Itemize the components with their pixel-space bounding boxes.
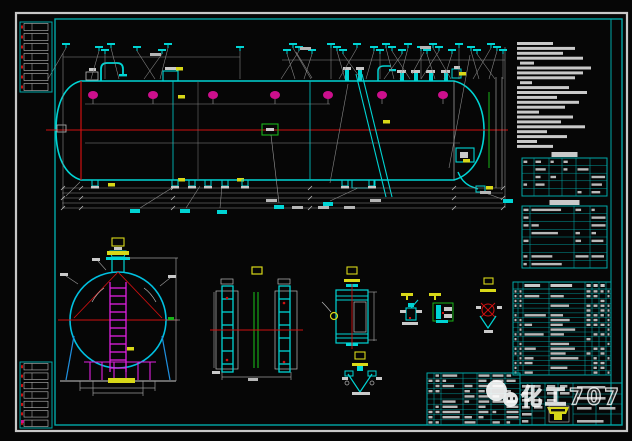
sign-table-cell-text bbox=[443, 385, 455, 387]
bom-table-cell-text bbox=[587, 338, 591, 340]
bottom-nozzle-cap bbox=[341, 186, 349, 189]
spec-table-cell-text bbox=[576, 209, 582, 211]
nozzle-flag bbox=[236, 46, 244, 48]
cad-viewport[interactable]: 化工707 bbox=[0, 0, 632, 441]
bottom-nozzle-cap bbox=[171, 186, 179, 189]
tb-cell-text bbox=[547, 385, 555, 388]
bom-table-cell-text bbox=[587, 305, 591, 307]
notes-table-cell-text bbox=[536, 183, 545, 185]
nozzle-flag bbox=[95, 46, 103, 48]
bottom-nozzle bbox=[205, 180, 211, 186]
bom-table-cell-text bbox=[601, 305, 605, 307]
bom-table-cell-text bbox=[515, 367, 517, 369]
detail-3-nozzle bbox=[429, 293, 453, 323]
green-tick bbox=[168, 317, 174, 320]
bom-table-cell-text bbox=[594, 348, 598, 350]
note-line bbox=[517, 116, 573, 119]
sign-table-cell-text bbox=[479, 380, 487, 382]
notes-table-cell-text bbox=[536, 168, 546, 170]
bom-table-cell-text bbox=[515, 348, 517, 350]
tb-cell-text bbox=[534, 385, 541, 388]
sign-table-cell-text bbox=[493, 374, 504, 376]
bom-table-cell-text bbox=[551, 324, 563, 326]
nozzle-cap-6 bbox=[441, 70, 450, 73]
cyan-dim-label bbox=[217, 210, 227, 214]
dim-text bbox=[420, 46, 431, 49]
bom-table-cell-text bbox=[520, 357, 522, 359]
nozzle-stub-4 bbox=[414, 73, 418, 81]
bom-table-cell-text bbox=[601, 300, 605, 302]
shell-flange bbox=[438, 91, 448, 99]
top-manhole bbox=[106, 247, 130, 272]
sign-table-cell-text bbox=[479, 411, 489, 413]
shell-flange bbox=[148, 91, 158, 99]
bom-table-cell-text bbox=[515, 362, 517, 364]
bom-table-cell-text bbox=[601, 352, 605, 354]
sign-table-cell-text bbox=[507, 390, 511, 392]
flag-leader bbox=[281, 51, 299, 79]
dim-text bbox=[292, 206, 303, 209]
spec-table-cell-text bbox=[532, 232, 558, 234]
nozzle-flag bbox=[289, 43, 297, 45]
nozzle-flag bbox=[487, 43, 495, 45]
strip-top-cell bbox=[24, 34, 48, 41]
bom-table-cell-text bbox=[515, 333, 517, 335]
yellow-tag bbox=[383, 120, 390, 124]
leader-6 bbox=[186, 186, 200, 208]
strip-bottom-cell bbox=[24, 401, 48, 407]
top-valve-cap bbox=[89, 68, 96, 71]
bom-table-cell-text bbox=[520, 305, 522, 307]
bom-table-cell-text bbox=[520, 362, 522, 364]
bom-table-cell-text bbox=[515, 338, 517, 340]
angle-arc-right bbox=[144, 288, 156, 302]
spec-table-cell-text bbox=[532, 224, 539, 226]
bom-table-cell-text bbox=[608, 328, 610, 330]
note-line bbox=[517, 67, 591, 70]
nozzle-flag bbox=[429, 43, 437, 45]
sign-table-cell-text bbox=[436, 406, 439, 408]
main-elevation-view bbox=[46, 47, 508, 208]
spec-table-cell-text bbox=[524, 216, 529, 218]
strip-top-mark bbox=[21, 66, 23, 69]
notes-table-cell-text bbox=[551, 176, 557, 178]
sign-table-cell-text bbox=[493, 421, 500, 423]
notes-table-cell-text bbox=[578, 191, 582, 193]
bom-table-cell-text bbox=[551, 305, 570, 307]
notes-table-cell-text bbox=[524, 183, 528, 185]
nozzle-flag bbox=[158, 49, 166, 51]
spec-table-cell-text bbox=[524, 263, 527, 265]
bom-table-cell-text bbox=[587, 319, 591, 321]
strip-top-cell bbox=[24, 44, 48, 51]
yellow-tag bbox=[178, 178, 185, 182]
bottom-nozzle bbox=[342, 180, 348, 186]
bom-table-cell-text bbox=[551, 328, 576, 330]
bom-table-cell-text bbox=[587, 295, 591, 297]
manhole-cap bbox=[165, 67, 176, 70]
dim-text bbox=[370, 199, 381, 202]
sign-table-cell-text bbox=[479, 416, 484, 418]
bom-table-cell-text bbox=[601, 333, 605, 335]
nozzle-flag bbox=[398, 49, 406, 51]
bom-table-cell-text bbox=[594, 371, 598, 373]
nozzle-flag bbox=[101, 49, 109, 51]
strip-bottom-mark bbox=[21, 384, 23, 387]
tb-cell-text bbox=[599, 407, 615, 410]
cyan-dim-label bbox=[323, 202, 333, 206]
detail-4-nozzle bbox=[476, 278, 502, 333]
note-line bbox=[517, 86, 569, 89]
nozzle-cap-5 bbox=[426, 70, 435, 73]
note-line bbox=[520, 62, 534, 65]
notes-table-cell-text bbox=[578, 168, 589, 170]
bottom-nozzle-cap bbox=[241, 186, 249, 189]
bom-table-cell-text bbox=[601, 367, 605, 369]
sign-table-cell-text bbox=[493, 400, 504, 402]
company-logo-band bbox=[551, 409, 565, 411]
bom-table-cell-text bbox=[551, 333, 564, 335]
bom-table-cell-text bbox=[608, 371, 610, 373]
strip-top-mark bbox=[21, 46, 23, 49]
bom-table-cell-text bbox=[594, 290, 598, 292]
internal-ladder-rail-2 bbox=[362, 74, 392, 197]
nozzle-cap-2 bbox=[356, 67, 364, 70]
bom-table-cell-text bbox=[608, 305, 610, 307]
bom-table-cell-text bbox=[525, 333, 544, 335]
flange-row bbox=[88, 91, 448, 104]
strip-top-cell bbox=[24, 84, 48, 91]
dim-text bbox=[300, 47, 311, 50]
bom-table-cell-text bbox=[551, 343, 570, 345]
flag-leader bbox=[473, 48, 491, 79]
level-gauge-glyph bbox=[266, 128, 274, 131]
edge-strips bbox=[20, 22, 52, 428]
bom-table-cell-text bbox=[608, 343, 610, 345]
sign-table-cell-text bbox=[507, 400, 517, 402]
notes-table-cell-text bbox=[592, 176, 606, 178]
nozzle-flag bbox=[493, 46, 501, 48]
leader-4 bbox=[296, 52, 312, 78]
sign-table-cell-text bbox=[429, 411, 433, 413]
tb-cell-text bbox=[577, 386, 605, 389]
nozzle-stub-1 bbox=[345, 70, 349, 81]
nozzle-flag bbox=[333, 46, 341, 48]
spec-table-cell-text bbox=[576, 232, 580, 234]
note-line bbox=[517, 71, 583, 74]
notes-table-cell-text bbox=[564, 168, 568, 170]
leader-1 bbox=[330, 84, 348, 183]
strip-top-mark bbox=[21, 86, 23, 89]
vent-gooseneck bbox=[101, 63, 123, 81]
bom-table-cell-text bbox=[587, 309, 591, 311]
notes-table-cell-text bbox=[524, 161, 528, 163]
sign-table-cell-text bbox=[429, 416, 433, 418]
nozzle-flag bbox=[455, 43, 463, 45]
bom-table-cell-text bbox=[551, 348, 575, 350]
sign-table-cell-text bbox=[436, 411, 440, 413]
nozzle-flag bbox=[382, 43, 390, 45]
saddle-plan-view bbox=[210, 267, 303, 381]
sign-table-cell-text bbox=[465, 395, 475, 397]
sign-table-cell-text bbox=[429, 380, 433, 382]
nozzle-flag bbox=[376, 49, 384, 51]
gooseneck-flange bbox=[119, 74, 127, 76]
sign-table-cell-text bbox=[507, 406, 519, 408]
internal-ladder bbox=[110, 282, 126, 372]
sign-table-cell-text bbox=[479, 374, 490, 376]
sign-table-cell-text bbox=[493, 411, 497, 413]
spec-table-cell-text bbox=[592, 209, 595, 211]
sign-table-cell-text bbox=[465, 421, 476, 423]
bom-table-cell-text bbox=[601, 362, 605, 364]
spec-table-cell-text bbox=[532, 263, 562, 265]
bom-table-cell-text bbox=[525, 362, 533, 364]
notes-table-cell-text bbox=[536, 161, 542, 163]
bom-table-cell-text bbox=[525, 348, 536, 350]
flag-leader bbox=[489, 51, 497, 79]
note-line bbox=[517, 111, 539, 114]
manhole-nozzle bbox=[163, 71, 178, 81]
bom-table-cell-text bbox=[520, 333, 522, 335]
strip-bottom-border bbox=[20, 362, 52, 428]
tb-cell-text bbox=[560, 392, 570, 395]
bom-table-cell-text bbox=[520, 328, 522, 330]
flag-leader bbox=[433, 48, 451, 79]
dim-text bbox=[318, 206, 329, 209]
strip-magenta-dot bbox=[21, 420, 24, 423]
leader-5 bbox=[140, 186, 175, 208]
bom-table-cell-text bbox=[515, 290, 517, 292]
note-line bbox=[517, 52, 563, 55]
sign-table-cell-text bbox=[436, 421, 439, 423]
nozzle-cap-4 bbox=[411, 70, 420, 73]
bom-table-cell-text bbox=[594, 333, 598, 335]
bom-table-cell-text bbox=[587, 314, 591, 316]
tb-cell-text bbox=[522, 392, 531, 395]
tb-cell-text bbox=[577, 397, 606, 400]
spec-table-cell-text bbox=[592, 255, 605, 257]
base-label-bar bbox=[108, 378, 135, 383]
bom-table-cell-text bbox=[608, 290, 610, 292]
bom-table-cell-text bbox=[601, 314, 604, 316]
sign-table-cell-text bbox=[465, 385, 473, 387]
drawing-sheet bbox=[0, 0, 632, 441]
inner-border bbox=[55, 19, 622, 425]
dim-text bbox=[344, 206, 355, 209]
yellow-tag bbox=[108, 183, 115, 187]
bom-table-cell-text bbox=[520, 324, 522, 326]
flag-leader bbox=[366, 51, 374, 79]
bom-table-cell-text bbox=[601, 348, 605, 350]
nozzle-flags bbox=[48, 43, 507, 79]
bom-table-cell-text bbox=[594, 367, 597, 369]
spec-table-cell-text bbox=[532, 255, 553, 257]
bom-table-cell-text bbox=[520, 343, 522, 345]
sign-table-cell-text bbox=[493, 385, 504, 387]
nozzle-flag bbox=[62, 43, 70, 45]
bom-table-cell-text bbox=[551, 319, 570, 321]
notes-table-cell-text bbox=[564, 161, 568, 163]
nozzle-flag bbox=[423, 49, 431, 51]
bom-table-cell-text bbox=[608, 309, 610, 311]
bom-table-cell-text bbox=[608, 314, 610, 316]
tb-cell-text bbox=[534, 406, 542, 409]
view-flag-box bbox=[112, 238, 124, 246]
sign-table-cell-text bbox=[443, 406, 458, 408]
dim-text bbox=[480, 191, 491, 194]
note-line bbox=[517, 125, 585, 128]
bom-table-cell-text bbox=[520, 352, 522, 354]
yellow-tag bbox=[176, 67, 183, 71]
notes-table-tab bbox=[552, 152, 578, 157]
notes-table-cell-text bbox=[551, 161, 554, 163]
sign-table-cell-text bbox=[493, 380, 504, 382]
note-line bbox=[517, 57, 583, 60]
shell-flange bbox=[323, 91, 333, 99]
nozzle-flag bbox=[499, 49, 507, 51]
dim-text bbox=[150, 53, 161, 56]
gauge-line-right bbox=[118, 272, 162, 318]
bottom-nozzle bbox=[222, 180, 228, 186]
sign-table-cell-text bbox=[436, 374, 439, 376]
bom-table-cell-text bbox=[601, 309, 605, 311]
view-label-bar bbox=[107, 251, 129, 255]
company-logo-base bbox=[554, 414, 562, 420]
strip-bottom-cell bbox=[24, 411, 48, 417]
detail-views bbox=[322, 267, 502, 395]
bom-table-cell-text bbox=[525, 314, 546, 316]
strip-top-cell bbox=[24, 24, 48, 31]
nozzle-flag bbox=[339, 49, 347, 51]
strip-top-mark bbox=[21, 26, 23, 29]
nozzle-flag bbox=[388, 46, 396, 48]
strip-bottom-cell bbox=[24, 382, 48, 388]
spec-table-cell-text bbox=[592, 216, 606, 218]
nozzle-flag bbox=[435, 46, 443, 48]
bottom-nozzle bbox=[92, 180, 98, 186]
yellow-tag bbox=[127, 347, 134, 351]
yellow-tag bbox=[459, 72, 466, 76]
note-line bbox=[517, 106, 565, 109]
bom-table-cell-text bbox=[515, 352, 517, 354]
tb-cell-text bbox=[522, 406, 530, 409]
strip-bottom-mark bbox=[21, 365, 23, 368]
bom-table-cell-text bbox=[594, 314, 598, 316]
notes-table-cell-text bbox=[592, 191, 601, 193]
sign-table-cell-text bbox=[507, 421, 511, 423]
spec-table-cell-text bbox=[592, 224, 606, 226]
saddle-edge-left bbox=[66, 336, 74, 380]
bom-table-cell-text bbox=[520, 300, 522, 302]
detail-1-nozzle-section bbox=[322, 267, 377, 349]
bom-table-header-text bbox=[587, 284, 591, 287]
nozzle-flag bbox=[164, 43, 172, 45]
nozzle-stub-5 bbox=[429, 73, 433, 81]
detail-5-support bbox=[342, 352, 382, 395]
spec-table-cell-text bbox=[576, 255, 589, 257]
strip-top-mark bbox=[21, 36, 23, 39]
shell-flange bbox=[270, 91, 280, 99]
leader-8 bbox=[330, 188, 358, 201]
plan-dim-text bbox=[248, 378, 258, 381]
strip-bottom-cell bbox=[24, 364, 48, 370]
drain-pipe bbox=[458, 172, 478, 189]
tb-cell-text bbox=[547, 399, 556, 402]
shell-flange bbox=[88, 91, 98, 99]
bom-table-header-text bbox=[594, 284, 598, 287]
bom-table-cell-text bbox=[525, 324, 533, 326]
tb-cell-text bbox=[522, 385, 531, 388]
sign-table-cell-text bbox=[465, 416, 472, 418]
strip-bottom-cell bbox=[24, 392, 48, 398]
cyan-dim-label bbox=[130, 209, 140, 213]
spec-table-cell-text bbox=[524, 224, 529, 226]
note-line bbox=[517, 101, 579, 104]
strip-bottom-cell bbox=[24, 420, 48, 426]
bom-table-cell-text bbox=[520, 295, 522, 297]
note-line bbox=[517, 130, 547, 133]
bottom-nozzle bbox=[189, 180, 195, 186]
sign-table-cell-text bbox=[465, 400, 470, 402]
note-line bbox=[517, 47, 575, 50]
shell-flange bbox=[208, 91, 218, 99]
bom-table-cell-text bbox=[601, 324, 605, 326]
spec-table-cell-text bbox=[576, 240, 582, 242]
bom-table-cell-text bbox=[608, 319, 610, 321]
head-manhole-cover bbox=[460, 152, 468, 158]
nozzle-flag bbox=[327, 43, 335, 45]
nozzle-flag bbox=[133, 46, 141, 48]
bom-table-cell-text bbox=[587, 290, 591, 292]
flag-leader bbox=[287, 54, 295, 79]
bottom-nozzle-cap bbox=[188, 186, 196, 189]
bom-table-cell-text bbox=[520, 319, 522, 321]
tech-notes bbox=[517, 42, 591, 148]
note-line bbox=[517, 120, 561, 123]
sign-table-cell-text bbox=[479, 385, 490, 387]
cyan-dim-label bbox=[503, 199, 513, 203]
flag-leader bbox=[293, 48, 311, 79]
sign-table-cell-text bbox=[465, 390, 470, 392]
tb-cell-text bbox=[577, 407, 592, 410]
cyan-dim-label bbox=[180, 209, 190, 213]
tb-cell-text bbox=[560, 385, 567, 388]
sign-table-cell-text bbox=[436, 380, 440, 382]
note-line bbox=[517, 76, 575, 79]
detail-2-nozzle bbox=[400, 293, 422, 325]
gauge-line-left bbox=[74, 272, 118, 318]
bom-table-cell-text bbox=[525, 357, 534, 359]
plan-view-label bbox=[252, 267, 262, 274]
tb-cell-text bbox=[522, 399, 529, 402]
bom-table-cell-text bbox=[515, 300, 517, 302]
note-line bbox=[517, 135, 567, 138]
tb-cell-text bbox=[522, 420, 528, 423]
saddle-front bbox=[84, 362, 156, 380]
spec-table-cell-text bbox=[524, 209, 529, 211]
nozzle-flag bbox=[353, 43, 361, 45]
nozzle-flag bbox=[448, 49, 456, 51]
bom-table-cell-text bbox=[608, 295, 610, 297]
end-view-dims bbox=[80, 258, 214, 396]
bom-table-cell-text bbox=[515, 295, 517, 297]
sign-table-cell-text bbox=[443, 400, 456, 402]
nozzle-flag bbox=[283, 49, 291, 51]
saddle-edge-right bbox=[162, 336, 170, 380]
drawing-frame bbox=[16, 13, 627, 431]
spec-table-cell-text bbox=[532, 209, 562, 211]
